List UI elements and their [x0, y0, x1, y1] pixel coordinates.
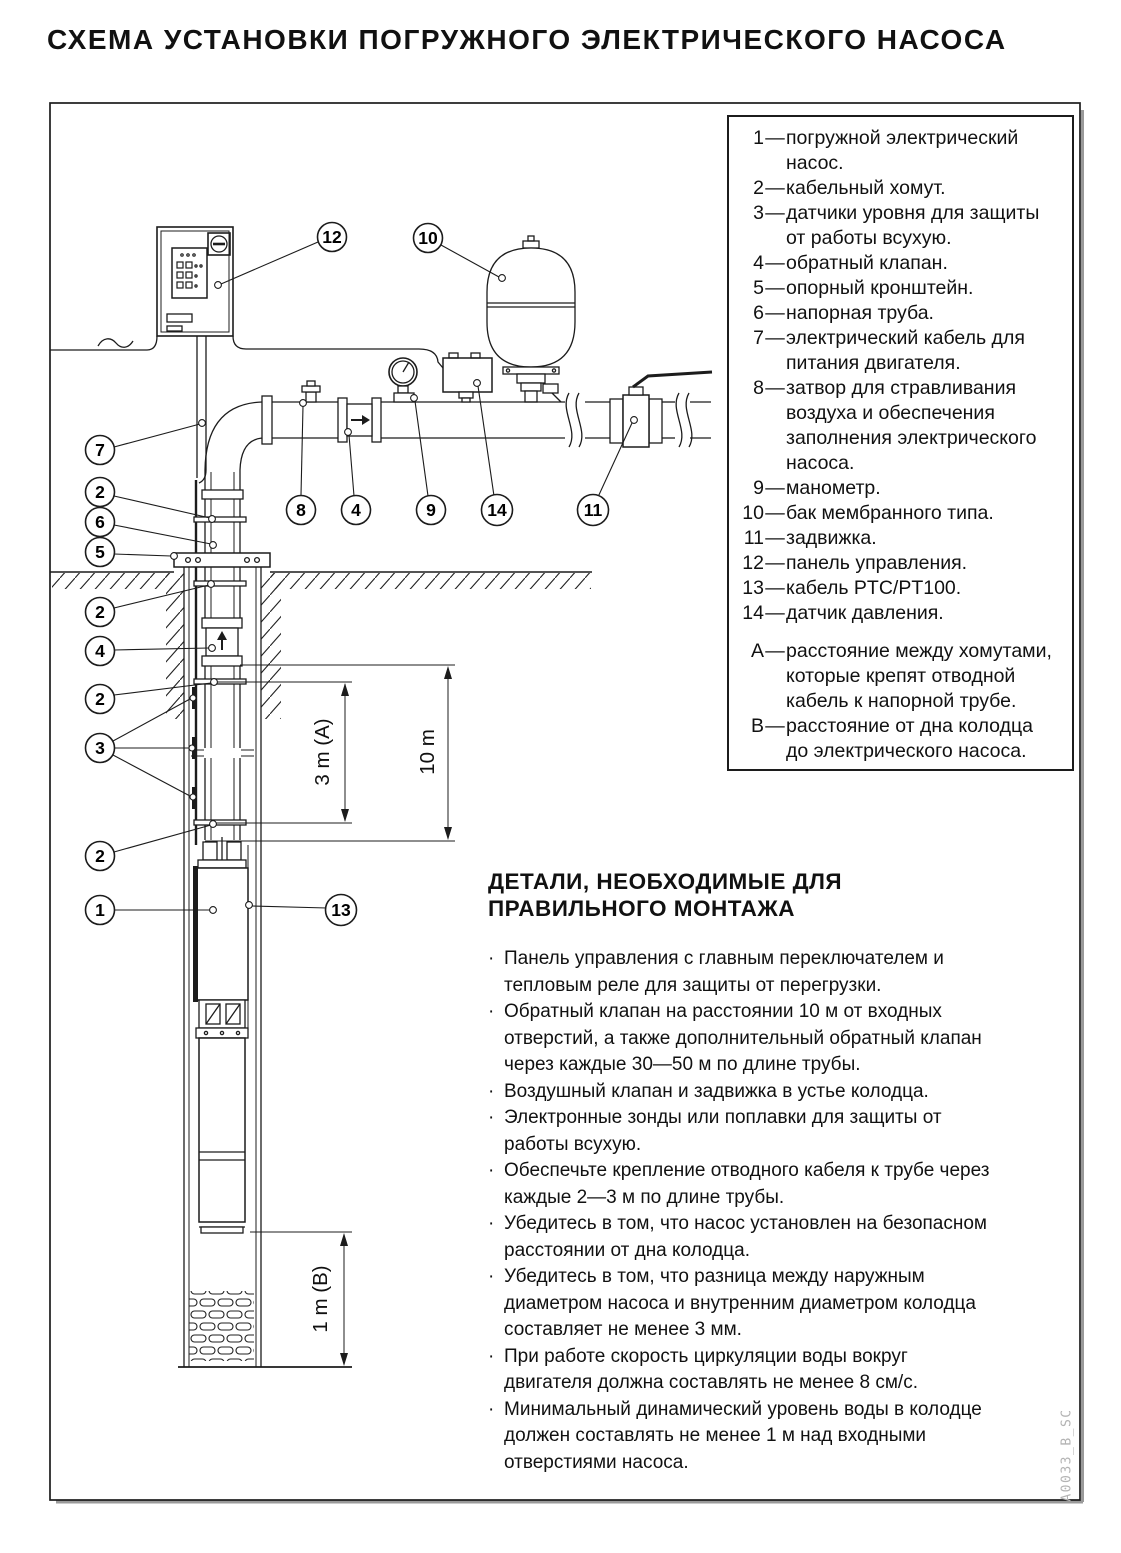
legend-item-text: затвор для стравливания воздуха и обеспе… — [786, 376, 1067, 476]
legend-item-14: 14—датчик давления. — [734, 601, 1067, 626]
legend-item-7: 7—электрический кабель для питания двига… — [734, 326, 1067, 376]
dim-label-1m: 1 m (B) — [309, 1265, 332, 1332]
svg-text:13: 13 — [331, 900, 351, 920]
bullet-item: ·Панель управления с главным переключате… — [488, 946, 1073, 999]
callout-10: 10 — [414, 224, 443, 253]
legend-item-number: 2 — [734, 176, 764, 201]
control-panel — [157, 227, 233, 336]
bullet-marker: · — [488, 1264, 504, 1344]
svg-text:4: 4 — [351, 500, 361, 520]
check-valve-horizontal — [338, 398, 381, 442]
bullet-item: ·Воздушный клапан и задвижка в устье кол… — [488, 1079, 1073, 1106]
callout-2c: 2 — [86, 685, 115, 714]
legend-item-number: 13 — [734, 576, 764, 601]
legend-item-text: манометр. — [786, 476, 1067, 501]
legend-item-text: кабельный хомут. — [786, 176, 1067, 201]
bullet-marker: · — [488, 999, 504, 1079]
callout-9: 9 — [417, 496, 446, 525]
legend-item-13: 13—кабель PTC/PT100. — [734, 576, 1067, 601]
bullet-item: ·При работе скорость циркуляции воды вок… — [488, 1344, 1073, 1397]
svg-text:10: 10 — [418, 228, 438, 248]
legend-item-number: 8 — [734, 376, 764, 476]
callout-2a: 2 — [86, 478, 115, 507]
legend-item-dash: — — [764, 501, 786, 526]
legend-item-number: 14 — [734, 601, 764, 626]
bullet-text: Обратный клапан на расстоянии 10 м от вх… — [504, 999, 1073, 1079]
bullet-item: ·Обратный клапан на расстоянии 10 м от в… — [488, 999, 1073, 1079]
svg-text:7: 7 — [95, 440, 105, 460]
legend-item-dash: — — [764, 601, 786, 626]
well-bottom-gravel — [189, 1291, 254, 1361]
callout-12: 12 — [318, 223, 347, 252]
bullet-marker: · — [488, 1397, 504, 1477]
legend-item-4: 4—обратный клапан. — [734, 251, 1067, 276]
details-heading: ДЕТАЛИ, НЕОБХОДИМЫЕ ДЛЯ ПРАВИЛЬНОГО МОНТ… — [488, 868, 1073, 922]
bullet-item: ·Электронные зонды или поплавки для защи… — [488, 1105, 1073, 1158]
bullet-item: ·Убедитесь в том, что разница между нару… — [488, 1264, 1073, 1344]
svg-text:8: 8 — [296, 500, 306, 520]
check-valve-well — [202, 618, 242, 666]
legend-item-text: расстояние от дна колодца до электрическ… — [786, 714, 1067, 764]
legend-item-number: B — [734, 714, 764, 764]
bullet-text: Воздушный клапан и задвижка в устье коло… — [504, 1079, 1073, 1106]
legend-item-dash: — — [764, 576, 786, 601]
bullet-marker: · — [488, 1211, 504, 1264]
callout-4b: 4 — [86, 637, 115, 666]
legend-item-number: A — [734, 639, 764, 714]
legend-item-2: 2—кабельный хомут. — [734, 176, 1067, 201]
bullet-text: Минимальный динамический уровень воды в … — [504, 1397, 1073, 1477]
legend-item-6: 6—напорная труба. — [734, 301, 1067, 326]
legend-item-number: 5 — [734, 276, 764, 301]
legend-item-10: 10—бак мембранного типа. — [734, 501, 1067, 526]
support-bracket — [174, 553, 270, 567]
legend-item-dash: — — [764, 551, 786, 576]
callout-6: 6 — [86, 508, 115, 537]
bullet-item: ·Убедитесь в том, что насос установлен н… — [488, 1211, 1073, 1264]
dim-label-3m: 3 m (A) — [311, 718, 334, 785]
callout-13: 13 — [326, 895, 357, 926]
callout-2d: 2 — [86, 842, 115, 871]
legend-item-9: 9—манометр. — [734, 476, 1067, 501]
legend-note-B: B—расстояние от дна колодца до электриче… — [734, 714, 1067, 764]
callout-11: 11 — [578, 495, 609, 526]
svg-text:12: 12 — [322, 227, 342, 247]
legend-item-number: 9 — [734, 476, 764, 501]
legend-item-text: погружной электрический насос. — [786, 126, 1067, 176]
bullet-text: Панель управления с главным переключател… — [504, 946, 1073, 999]
bullet-marker: · — [488, 946, 504, 999]
bullet-text: Электронные зонды или поплавки для защит… — [504, 1105, 1073, 1158]
legend-item-number: 1 — [734, 126, 764, 176]
bullet-text: Обеспечьте крепление отводного кабеля к … — [504, 1158, 1073, 1211]
bullet-item: ·Обеспечьте крепление отводного кабеля к… — [488, 1158, 1073, 1211]
legend-item-12: 12—панель управления. — [734, 551, 1067, 576]
legend-item-number: 4 — [734, 251, 764, 276]
callout-8: 8 — [287, 496, 316, 525]
callout-4a: 4 — [342, 496, 371, 525]
svg-text:2: 2 — [95, 689, 105, 709]
svg-text:5: 5 — [95, 542, 105, 562]
legend-box: 1—погружной электрический насос.2—кабель… — [728, 116, 1073, 770]
bullet-text: Убедитесь в том, что разница между наруж… — [504, 1264, 1073, 1344]
callout-1: 1 — [86, 896, 115, 925]
legend-item-number: 7 — [734, 326, 764, 376]
legend-item-text: задвижка. — [786, 526, 1067, 551]
legend-item-dash: — — [764, 251, 786, 276]
legend-item-11: 11—задвижка. — [734, 526, 1067, 551]
callout-7: 7 — [86, 436, 115, 465]
legend-item-1: 1—погружной электрический насос. — [734, 126, 1067, 176]
legend-item-number: 10 — [734, 501, 764, 526]
callout-2b: 2 — [86, 598, 115, 627]
callout-5: 5 — [86, 538, 115, 567]
svg-text:2: 2 — [95, 602, 105, 622]
legend-item-dash: — — [764, 639, 786, 714]
svg-text:9: 9 — [426, 500, 436, 520]
svg-text:11: 11 — [584, 500, 603, 520]
legend-item-text: датчик давления. — [786, 601, 1067, 626]
legend-item-text: расстояние между хомутами, которые крепя… — [786, 639, 1067, 714]
callout-14: 14 — [482, 495, 513, 526]
legend-item-dash: — — [764, 201, 786, 251]
legend-item-number: 6 — [734, 301, 764, 326]
svg-text:6: 6 — [95, 512, 105, 532]
svg-text:3: 3 — [95, 738, 105, 758]
legend-note-A: A—расстояние между хомутами, которые кре… — [734, 639, 1067, 714]
legend-item-dash: — — [764, 376, 786, 476]
bullet-item: ·Минимальный динамический уровень воды в… — [488, 1397, 1073, 1477]
legend-item-dash: — — [764, 476, 786, 501]
legend-item-3: 3—датчики уровня для защиты от работы вс… — [734, 201, 1067, 251]
legend-item-text: электрический кабель для питания двигате… — [786, 326, 1067, 376]
legend-item-text: панель управления. — [786, 551, 1067, 576]
details-bullets: ·Панель управления с главным переключате… — [488, 946, 1073, 1476]
svg-text:2: 2 — [95, 846, 105, 866]
legend-item-8: 8—затвор для стравливания воздуха и обес… — [734, 376, 1067, 476]
legend-item-text: опорный кронштейн. — [786, 276, 1067, 301]
legend-item-dash: — — [764, 326, 786, 376]
legend-item-dash: — — [764, 276, 786, 301]
legend-item-text: обратный клапан. — [786, 251, 1067, 276]
legend-item-number: 11 — [734, 526, 764, 551]
legend-item-number: 12 — [734, 551, 764, 576]
dim-label-10m: 10 m — [416, 729, 439, 775]
bullet-text: Убедитесь в том, что насос установлен на… — [504, 1211, 1073, 1264]
details-section: ДЕТАЛИ, НЕОБХОДИМЫЕ ДЛЯ ПРАВИЛЬНОГО МОНТ… — [488, 868, 1073, 1476]
legend-notes: A—расстояние между хомутами, которые кре… — [734, 639, 1067, 764]
bullet-marker: · — [488, 1158, 504, 1211]
legend-item-text: бак мембранного типа. — [786, 501, 1067, 526]
callout-3: 3 — [86, 734, 115, 763]
watermark: A0033_B_SC — [1060, 1408, 1075, 1501]
legend-item-dash: — — [764, 714, 786, 764]
legend-item-text: датчики уровня для защиты от работы всух… — [786, 201, 1067, 251]
svg-text:14: 14 — [487, 500, 507, 520]
svg-text:4: 4 — [95, 641, 105, 661]
bullet-marker: · — [488, 1344, 504, 1397]
bullet-marker: · — [488, 1079, 504, 1106]
bullet-marker: · — [488, 1105, 504, 1158]
svg-text:1: 1 — [95, 900, 105, 920]
legend-item-dash: — — [764, 126, 786, 176]
legend-item-text: кабель PTC/PT100. — [786, 576, 1067, 601]
legend-item-dash: — — [764, 176, 786, 201]
legend-item-5: 5—опорный кронштейн. — [734, 276, 1067, 301]
legend-item-text: напорная труба. — [786, 301, 1067, 326]
svg-text:2: 2 — [95, 482, 105, 502]
legend-item-dash: — — [764, 526, 786, 551]
bullet-text: При работе скорость циркуляции воды вокр… — [504, 1344, 1073, 1397]
page: СХЕМА УСТАНОВКИ ПОГРУЖНОГО ЭЛЕКТРИЧЕСКОГ… — [0, 0, 1121, 1553]
pump — [193, 837, 248, 1233]
legend-item-dash: — — [764, 301, 786, 326]
legend-item-number: 3 — [734, 201, 764, 251]
